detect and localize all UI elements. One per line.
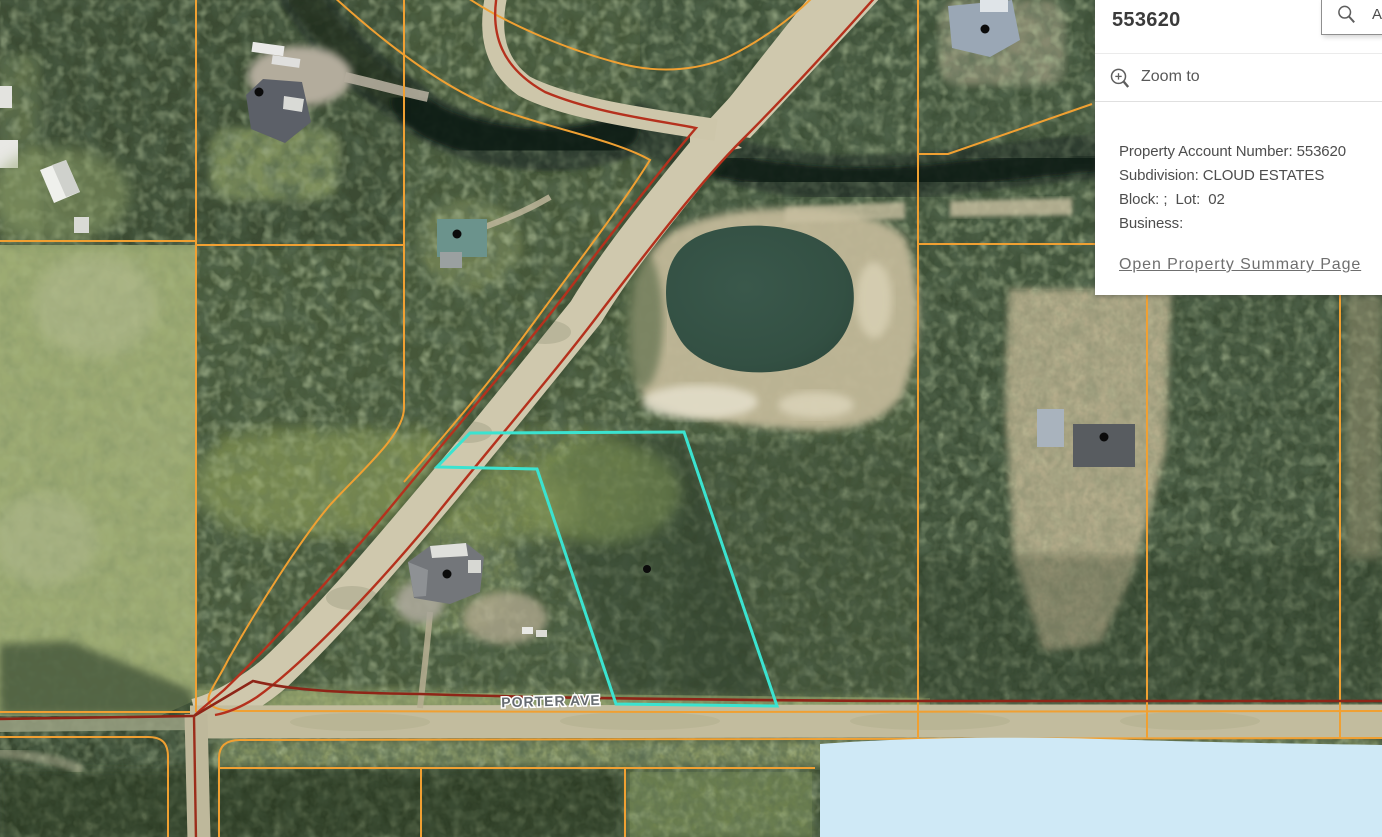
svg-text:PORTER AVE: PORTER AVE	[501, 692, 601, 711]
